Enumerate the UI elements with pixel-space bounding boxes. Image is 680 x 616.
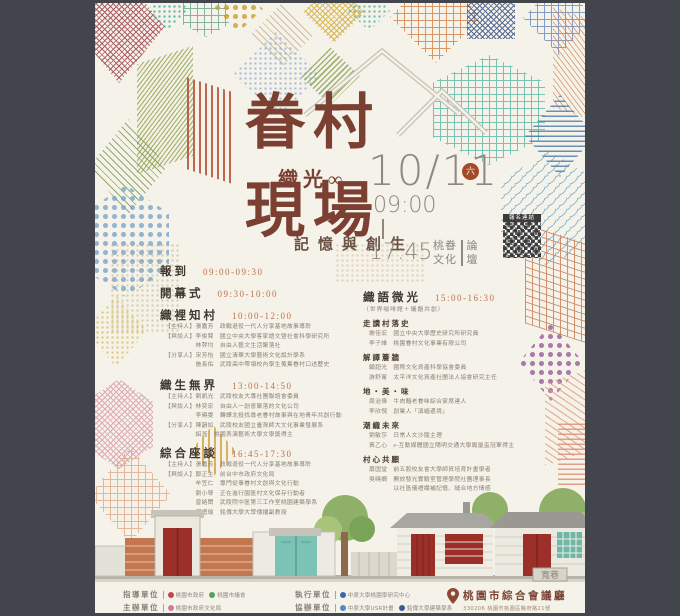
topic-heading: 解譯簷牆 [363,352,401,363]
decorative-pattern [95,185,169,297]
org-logo: 桃園市政府文化局 [168,604,222,612]
forum-caption-text: 論 [467,239,479,253]
poster-title-bottom: 現場 [245,181,381,241]
text-line: 謝佳宏 國立中央大學歷史研究所研究員 [369,330,479,340]
text-line: 施長佑 武陵高中帶領校內學生蒐集眷村口述歷史 [165,361,330,371]
decorative-pattern [147,3,189,31]
text-line: 【主持人】劉凱光 武陵校友大專社團聯誼會委員 [165,393,342,403]
decorative-pattern [303,3,365,43]
qr-code-block: 報名連結 [503,214,541,258]
workshop-name: 織語微光 [363,292,421,304]
session-name: 綜合座談 [160,448,218,460]
decorative-pattern [525,95,585,177]
decorative-pattern [183,3,229,37]
session-speaker-lines: 【主持人】張嘉芳 政戰退役一代人分享基地故事導聆【與談人】李俊賢 國立中央大學客… [165,323,330,371]
workshop-time: 15:00-16:30 [435,293,496,303]
weekday-badge: 六 [462,163,479,180]
session-speaker-lines: 【主持人】劉凱光 武陵校友大專社團聯誼會委員【與談人】林奕宏 自由人一創意聚落的… [165,393,342,441]
text-line: 李子維 桃園眷村文化事業有限公司 [369,340,479,350]
forum-caption: 桃眷文化 論壇 [433,239,479,267]
decorative-pattern [95,3,165,83]
decorative-pattern [467,3,515,39]
org-logo: 中原大學USR計畫 [340,604,394,612]
app-background: { "poster": { "title_top": "眷村", "title_… [0,0,680,616]
text-line: 李欣俔 創業人「滇緬邊境」 [369,408,467,418]
venue-name: 桃園市綜合會議廳 [463,588,567,603]
event-poster: 眷村 織光∞ 現場 記憶與創生 10/11 六 09:00 17:45 桃眷文化… [95,3,585,613]
org-logo: 銘傳大學建築學系 [399,604,453,612]
credit-label: 執行單位 [295,589,331,600]
session-time: 10:00-12:00 [232,311,293,321]
decorative-pattern [137,46,193,174]
decorative-pattern [545,367,585,466]
decorative-pattern [95,119,167,215]
decorative-pattern [187,77,235,185]
text-line: 【分享人】宋芳怡 國立清華大學藝術文化設計學系 [165,352,330,362]
village-illustration: 寬巷 [95,476,585,588]
caption-divider [461,240,463,266]
text-line: 顧超光 國際文化資產科學協會委員 [369,364,497,374]
venue-address: 330206 桃園市桃園區縣府路21號 [463,605,567,612]
decorative-pattern [523,3,585,55]
topic-lines: 周治偉 牛肉麵老眷味綜合宴席達人李欣俔 創業人「滇緬邊境」 [369,398,467,417]
session-time: 13:00-14:50 [232,381,293,391]
text-line: 李曉雯 轉譯北投找尋老眷村故事與在地青年共創行動 [165,412,342,422]
text-line: 絽湉 桃園表演藝術大學文學獎得主 [165,431,342,441]
org-name: 桃園市議會 [217,591,246,599]
decorative-pattern [553,7,585,123]
qr-code [503,222,541,258]
workshop-note: （世界咖啡館＋議題共創） [363,304,445,313]
text-line: 【分享人】陳韻如 武陵校友國立臺灣師大文化事業發展系 [165,422,342,432]
session-time: 09:00-09:30 [203,267,264,277]
topic-heading: 走讀村落史 [363,318,411,329]
time-divider [382,219,384,239]
forum-caption-text: 壇 [467,253,479,267]
text-line: 【主持人】張嘉芳 政戰退役一代人分享基地故事導聆 [165,461,317,471]
session-name: 織生無界 [160,380,218,392]
text-line: 蕭国堂 前五股校友會大學師資培育計畫學者 [369,466,491,476]
text-line: 【與談人】李俊賢 國立中央大學客家語文暨社會科學研究所 [165,333,330,343]
org-name: 桃園市政府 [176,591,205,599]
end-time: 17:45 [369,240,432,265]
org-logo: 桃園市議會 [209,591,246,599]
alley-sign-text: 寬巷 [541,569,559,580]
topic-lines: 劉敏莎 日常人文沙龍主理黃乙心 e-互動媒體國立陽明交通大學鳳凰盃冠軍得主 [369,432,514,451]
topic-lines: 顧超光 國際文化資產科學協會委員游舒甯 太平洋文化資產社團法人協會研究主任 [369,364,497,383]
session-name: 織裡知村 [160,310,218,322]
text-line: 黃乙心 e-互動媒體國立陽明交通大學鳳凰盃冠軍得主 [369,442,514,452]
decorative-pattern [519,323,583,401]
session-time: 09:30-10:00 [218,289,279,299]
org-logo: 中原大學桃園學研究中心 [340,591,411,599]
venue-block: 桃園市綜合會議廳 330206 桃園市桃園區縣府路21號 [447,588,567,612]
text-line: 【與談人】林奕宏 自由人一創意聚落的文化公司 [165,403,342,413]
footer-credits: 指導單位| 桃園市政府 桃園市議會 主辦單位| 桃園市政府文化局 執行單位| 中… [95,588,585,613]
credit-label: 主辦單位 [123,602,159,613]
text-line: 劉敏莎 日常人文沙龍主理 [369,432,514,442]
topic-heading: 地・美・味 [363,386,411,397]
session-heading: 報到 09:00-09:30 [160,262,264,280]
org-name: 中原大學桃園學研究中心 [348,591,411,599]
topic-lines: 謝佳宏 國立中央大學歷史研究所研究員李子維 桃園眷村文化事業有限公司 [369,330,479,349]
session-heading: 織裡知村 10:00-12:00 [160,306,293,324]
session-name: 報到 [160,266,189,278]
credit-row: 指導單位| 桃園市政府 桃園市議會 [123,589,251,600]
org-name: 銘傳大學建築學系 [407,604,453,612]
session-time: 16:45-17:30 [232,449,293,459]
org-name: 桃園市政府文化局 [176,604,222,612]
poster-title-top: 眷村 [245,93,381,153]
text-line: 【主持人】張嘉芳 政戰退役一代人分享基地故事導聆 [165,323,330,333]
session-heading: 綜合座談 16:45-17:30 [160,444,293,462]
qr-code-label: 報名連結 [503,214,541,222]
credit-row: 執行單位| 中原大學桃園學研究中心 [295,589,415,600]
session-name: 開幕式 [160,288,204,300]
org-logo: 桃園市政府 [168,591,205,599]
text-line: 林羿均 自由人藝文生活聚落社 [165,342,330,352]
forum-caption-text: 文化 [433,253,457,267]
forum-caption-text: 桃眷 [433,239,457,253]
session-heading: 開幕式 09:30-10:00 [160,284,278,302]
event-date: 10/11 [368,146,499,195]
credit-label: 協辦單位 [295,602,331,613]
credit-label: 指導單位 [123,589,159,600]
decorative-pattern [213,3,263,33]
location-pin-icon [447,588,459,604]
decorative-pattern [95,295,147,367]
topic-heading: 村心共願 [363,454,401,465]
org-name: 中原大學USR計畫 [348,604,394,612]
text-line: 周治偉 牛肉麵老眷味綜合宴席達人 [369,398,467,408]
credit-row: 協辦單位| 中原大學USR計畫 銘傳大學建築學系 [295,602,457,613]
credit-row: 主辦單位| 桃園市政府文化局 [123,602,226,613]
start-time: 09:00 [373,193,436,218]
decorative-pattern [347,3,391,31]
session-heading: 織生無界 13:00-14:50 [160,376,293,394]
topic-heading: 潮織未來 [363,420,401,431]
text-line: 游舒甯 太平洋文化資產社團法人協會研究主任 [369,374,497,384]
decorative-pattern [95,379,153,469]
